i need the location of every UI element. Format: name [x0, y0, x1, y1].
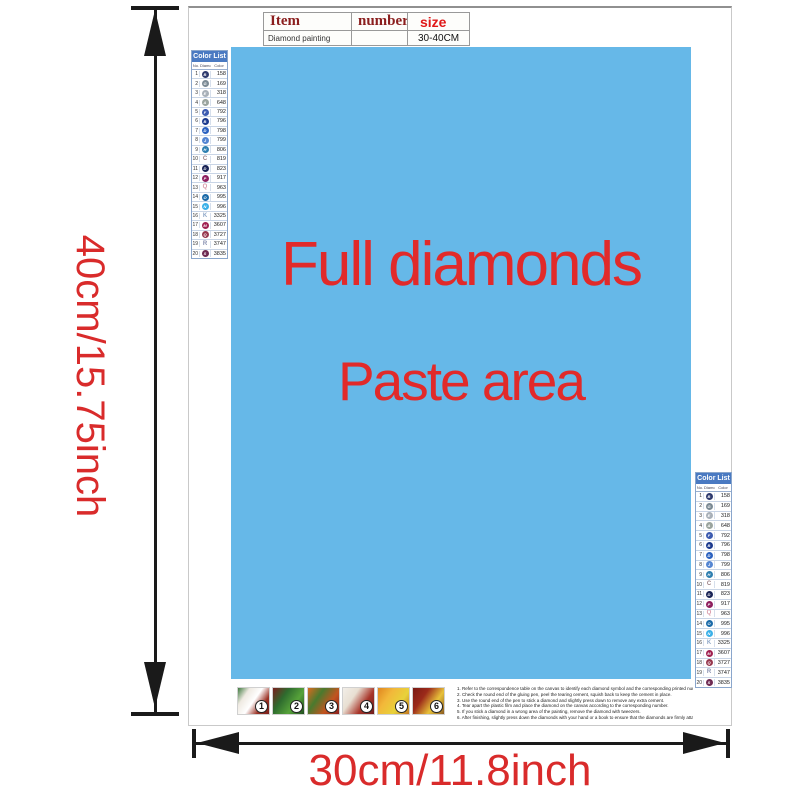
item-header-cell: Item	[264, 13, 352, 31]
color-row-3727: 18Q3727	[696, 659, 731, 669]
color-row-648: 4A648	[192, 98, 227, 107]
color-row-number: 8	[192, 137, 200, 143]
color-code: 169	[715, 503, 731, 509]
paste-area-title: Full diamonds	[231, 229, 691, 300]
step-number-badge: 2	[290, 700, 303, 713]
color-code: 996	[715, 631, 731, 637]
color-row-number: 8	[696, 562, 704, 568]
vertical-dimension-line	[154, 10, 157, 712]
color-row-318: 3E318	[192, 89, 227, 98]
step-thumbnail-2: 2	[272, 687, 305, 715]
color-row-799: 8J799	[696, 561, 731, 571]
diamond-swatch-icon: P	[202, 175, 209, 182]
color-code: 158	[211, 71, 227, 77]
color-code: 792	[715, 533, 731, 539]
color-code: 819	[715, 582, 731, 588]
color-row-number: 1	[192, 71, 200, 77]
color-row-number: 13	[192, 185, 200, 191]
diamond-symbol-letter: C	[203, 156, 207, 162]
color-row-158: 1B158	[696, 492, 731, 502]
color-code: 806	[211, 147, 227, 153]
color-row-number: 3	[192, 90, 200, 96]
diamond-symbol-letter: K	[707, 640, 711, 646]
color-code: 819	[211, 156, 227, 162]
col-no-label: No.	[696, 485, 704, 490]
color-list-left: Color List No. Diamond Color 1B1582G1693…	[191, 50, 228, 259]
step-number-badge: 3	[325, 700, 338, 713]
color-row-3747: 19R3747	[696, 668, 731, 678]
color-code: 796	[715, 542, 731, 548]
instruction-line: 6. After finishing, slightly press down …	[457, 715, 693, 721]
step-thumbnail-1: 1	[237, 687, 270, 715]
color-row-792: 5F792	[696, 531, 731, 541]
paste-area-subtitle: Paste area	[231, 349, 691, 413]
color-row-963: 13Q963	[696, 610, 731, 620]
diamond-swatch-icon: E	[202, 90, 209, 97]
color-row-3607: 17M3607	[192, 221, 227, 230]
color-row-number: 7	[192, 128, 200, 134]
color-code: 3747	[715, 670, 731, 676]
color-row-318: 3E318	[696, 512, 731, 522]
color-row-number: 17	[696, 650, 704, 656]
color-row-number: 9	[192, 147, 200, 153]
color-code: 3747	[211, 241, 227, 247]
color-code: 792	[211, 109, 227, 115]
instruction-thumbnails: 123456	[237, 687, 447, 715]
number-header-cell: number	[352, 13, 408, 31]
color-code: 996	[211, 204, 227, 210]
color-code: 3325	[211, 213, 227, 219]
color-row-799: 8J799	[192, 136, 227, 145]
color-row-number: 16	[192, 213, 200, 219]
color-row-number: 12	[192, 175, 200, 181]
size-value-cell: 30-40CM	[408, 31, 470, 46]
color-row-number: 13	[696, 611, 704, 617]
diamond-swatch-icon: P	[706, 601, 713, 608]
diamond-swatch-icon: D	[202, 165, 209, 172]
color-row-995: 14O995	[696, 619, 731, 629]
color-row-number: 10	[192, 156, 200, 162]
arrow-right-icon	[683, 732, 725, 754]
color-row-3325: 16K3325	[696, 639, 731, 649]
color-row-number: 5	[192, 109, 200, 115]
color-row-169: 2G169	[192, 79, 227, 88]
color-row-number: 20	[192, 251, 200, 257]
diamond-swatch-icon: O	[202, 194, 209, 201]
color-row-number: 14	[192, 194, 200, 200]
color-row-number: 6	[192, 118, 200, 124]
color-row-number: 11	[696, 591, 704, 597]
diamond-swatch-icon: B	[202, 71, 209, 78]
diamond-swatch-icon: Q	[706, 659, 713, 666]
horizontal-dimension-cap-right	[726, 729, 730, 758]
color-row-996: 15N996	[696, 629, 731, 639]
color-code: 798	[715, 552, 731, 558]
color-row-648: 4A648	[696, 521, 731, 531]
diamond-swatch-icon: G	[706, 503, 713, 510]
color-code: 3325	[715, 640, 731, 646]
size-header-cell: size	[408, 13, 470, 31]
color-row-806: 9H806	[696, 570, 731, 580]
horizontal-dimension-line	[194, 742, 728, 745]
color-row-995: 14O995	[192, 193, 227, 202]
diamond-swatch-icon: M	[706, 650, 713, 657]
color-code: 796	[211, 118, 227, 124]
color-row-number: 14	[696, 621, 704, 627]
color-code: 806	[715, 572, 731, 578]
item-table-data-row: Diamond painting 30-40CM	[264, 31, 470, 46]
diamond-swatch-icon: F	[706, 532, 713, 539]
color-code: 3835	[211, 251, 227, 257]
diamond-symbol-letter: Q	[707, 610, 712, 616]
diamond-swatch-icon: E	[706, 512, 713, 519]
color-row-169: 2G169	[696, 502, 731, 512]
diamond-swatch-icon: B	[706, 493, 713, 500]
color-code: 798	[211, 128, 227, 134]
paste-area: Full diamonds Paste area	[231, 47, 691, 679]
diamond-swatch-icon: A	[202, 99, 209, 106]
diamond-swatch-icon: A	[706, 522, 713, 529]
diamond-swatch-icon: J	[202, 137, 209, 144]
color-row-823: 11D823	[696, 590, 731, 600]
color-row-823: 11D823	[192, 165, 227, 174]
color-row-number: 20	[696, 680, 704, 686]
diamond-symbol-letter: R	[203, 241, 207, 247]
instruction-line: 2. Check the round end of the gluing pen…	[457, 692, 693, 698]
color-code: 3727	[715, 660, 731, 666]
color-row-3835: 20S3835	[696, 678, 731, 687]
color-row-819: 10C819	[192, 155, 227, 164]
canvas-sheet: Item number size Diamond painting 30-40C…	[188, 6, 732, 726]
arrow-up-icon	[144, 10, 166, 56]
color-row-3727: 18Q3727	[192, 231, 227, 240]
color-code: 648	[211, 100, 227, 106]
diamond-swatch-icon: J	[706, 561, 713, 568]
arrow-left-icon	[197, 732, 239, 754]
color-row-number: 15	[696, 631, 704, 637]
diamond-swatch-icon: B	[706, 542, 713, 549]
color-row-number: 4	[192, 100, 200, 106]
diamond-symbol-letter: Q	[203, 184, 208, 190]
diamond-swatch-icon: D	[706, 552, 713, 559]
color-list-title: Color List	[192, 51, 227, 62]
color-code: 158	[715, 493, 731, 499]
color-code: 648	[715, 523, 731, 529]
color-row-806: 9H806	[192, 146, 227, 155]
color-code: 799	[211, 137, 227, 143]
color-code: 963	[211, 185, 227, 191]
color-row-number: 19	[696, 670, 704, 676]
diamond-symbol-letter: R	[707, 669, 711, 675]
col-diamond-label: Diamond	[704, 485, 715, 490]
color-code: 917	[211, 175, 227, 181]
color-row-963: 13Q963	[192, 183, 227, 192]
diamond-symbol-letter: C	[707, 581, 711, 587]
color-code: 823	[211, 166, 227, 172]
item-info-table: Item number size Diamond painting 30-40C…	[263, 12, 470, 46]
diamond-swatch-icon: H	[202, 146, 209, 153]
diamond-swatch-icon: G	[202, 80, 209, 87]
color-row-number: 12	[696, 601, 704, 607]
step-number-badge: 6	[430, 700, 443, 713]
color-row-917: 12P917	[192, 174, 227, 183]
color-code: 3835	[715, 680, 731, 686]
diamond-swatch-icon: B	[202, 118, 209, 125]
color-row-3747: 19R3747	[192, 240, 227, 249]
color-row-796: 6B796	[696, 541, 731, 551]
color-list-subheader: No. Diamond Color	[696, 484, 731, 492]
color-code: 318	[211, 90, 227, 96]
col-color-label: Color	[211, 63, 227, 68]
color-list-right: Color List No. Diamond Color 1B1582G1693…	[695, 472, 732, 688]
item-table-header-row: Item number size	[264, 13, 470, 31]
color-row-number: 17	[192, 222, 200, 228]
color-row-792: 5F792	[192, 108, 227, 117]
step-thumbnail-6: 6	[412, 687, 445, 715]
color-code: 3607	[715, 650, 731, 656]
diamond-swatch-icon: N	[706, 630, 713, 637]
color-row-158: 1B158	[192, 70, 227, 79]
instruction-line: 1. Refer to the correspondence table on …	[457, 686, 693, 692]
color-row-number: 6	[696, 542, 704, 548]
height-dimension-label: 40cm/15.75inch	[64, 206, 112, 546]
color-code: 995	[715, 621, 731, 627]
color-row-number: 16	[696, 640, 704, 646]
arrow-down-icon	[144, 662, 166, 708]
step-thumbnail-4: 4	[342, 687, 375, 715]
vertical-dimension-cap-bottom	[131, 712, 179, 716]
color-row-3325: 16K3325	[192, 212, 227, 221]
color-code: 169	[211, 81, 227, 87]
color-code: 3607	[211, 222, 227, 228]
color-row-number: 19	[192, 241, 200, 247]
diamond-swatch-icon: S	[202, 250, 209, 257]
color-list-title: Color List	[696, 473, 731, 484]
diamond-swatch-icon: D	[706, 591, 713, 598]
color-row-798: 7D798	[192, 127, 227, 136]
product-dimension-diagram: Item number size Diamond painting 30-40C…	[0, 0, 800, 800]
diamond-swatch-icon: Q	[202, 231, 209, 238]
color-list-subheader: No. Diamond Color	[192, 62, 227, 70]
color-row-3835: 20S3835	[192, 250, 227, 258]
diamond-symbol-letter: K	[203, 213, 207, 219]
color-row-number: 7	[696, 552, 704, 558]
color-row-number: 11	[192, 166, 200, 172]
diamond-swatch-icon: M	[202, 222, 209, 229]
step-thumbnail-5: 5	[377, 687, 410, 715]
step-number-badge: 4	[360, 700, 373, 713]
color-code: 3727	[211, 232, 227, 238]
diamond-swatch-icon: F	[202, 109, 209, 116]
color-row-number: 2	[696, 503, 704, 509]
step-thumbnail-3: 3	[307, 687, 340, 715]
color-row-number: 10	[696, 582, 704, 588]
diamond-swatch-icon: N	[202, 203, 209, 210]
color-code: 799	[715, 562, 731, 568]
color-code: 917	[715, 601, 731, 607]
color-row-917: 12P917	[696, 600, 731, 610]
color-row-798: 7D798	[696, 551, 731, 561]
color-row-number: 3	[696, 513, 704, 519]
step-number-badge: 1	[255, 700, 268, 713]
instruction-text-block: 1. Refer to the correspondence table on …	[457, 686, 693, 724]
color-row-number: 4	[696, 523, 704, 529]
color-row-number: 5	[696, 533, 704, 539]
color-row-number: 2	[192, 81, 200, 87]
col-no-label: No.	[192, 63, 200, 68]
color-code: 823	[715, 591, 731, 597]
diamond-swatch-icon: S	[706, 679, 713, 686]
col-color-label: Color	[715, 485, 731, 490]
horizontal-dimension-cap-left	[192, 729, 196, 758]
color-row-number: 1	[696, 493, 704, 499]
color-list-rows: 1B1582G1693E3184A6485F7926B7967D7988J799…	[696, 492, 731, 687]
diamond-swatch-icon: D	[202, 127, 209, 134]
color-row-number: 18	[192, 232, 200, 238]
color-row-number: 15	[192, 204, 200, 210]
width-dimension-label: 30cm/11.8inch	[270, 746, 630, 796]
number-value-cell	[352, 31, 408, 46]
color-row-819: 10C819	[696, 580, 731, 590]
color-code: 995	[211, 194, 227, 200]
color-row-number: 9	[696, 572, 704, 578]
color-row-796: 6B796	[192, 117, 227, 126]
diamond-swatch-icon: H	[706, 571, 713, 578]
color-row-number: 18	[696, 660, 704, 666]
step-number-badge: 5	[395, 700, 408, 713]
color-code: 963	[715, 611, 731, 617]
color-list-rows: 1B1582G1693E3184A6485F7926B7967D7988J799…	[192, 70, 227, 258]
color-row-3607: 17M3607	[696, 649, 731, 659]
item-value-cell: Diamond painting	[264, 31, 352, 46]
color-code: 318	[715, 513, 731, 519]
col-diamond-label: Diamond	[200, 63, 211, 68]
diamond-swatch-icon: O	[706, 620, 713, 627]
color-row-996: 15N996	[192, 202, 227, 211]
